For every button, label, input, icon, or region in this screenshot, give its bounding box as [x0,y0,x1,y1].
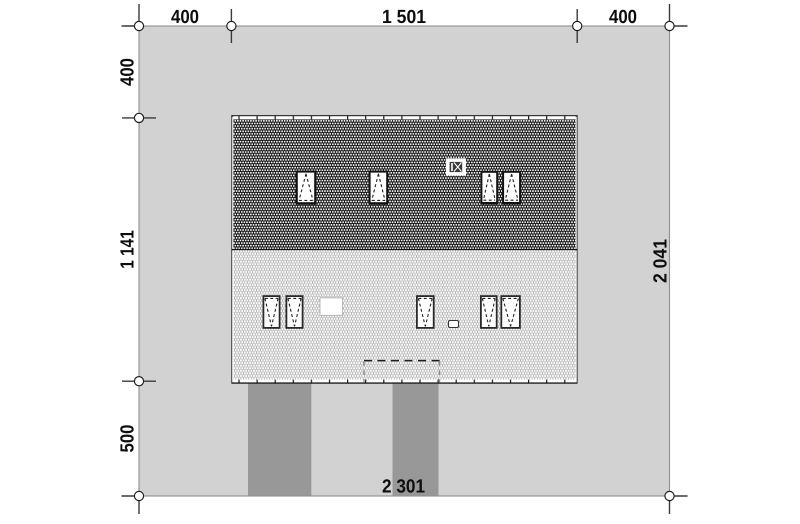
svg-text:2 041: 2 041 [651,239,672,283]
svg-text:400: 400 [609,7,637,28]
svg-text:1 141: 1 141 [118,230,139,269]
svg-text:1 501: 1 501 [382,7,426,28]
svg-text:500: 500 [118,425,139,453]
svg-text:400: 400 [171,7,199,28]
svg-text:2 301: 2 301 [382,477,425,498]
svg-text:400: 400 [118,58,139,86]
